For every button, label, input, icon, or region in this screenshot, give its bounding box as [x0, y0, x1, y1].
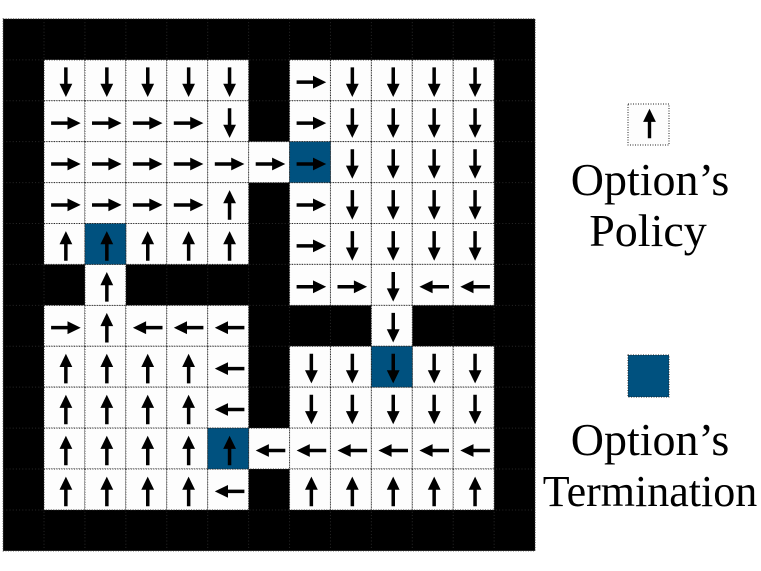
svg-text:Option’s: Option’s — [571, 414, 729, 465]
svg-text:Termination: Termination — [543, 467, 757, 516]
svg-text:Option’s: Option’s — [571, 154, 729, 205]
svg-text:Policy: Policy — [589, 205, 707, 256]
